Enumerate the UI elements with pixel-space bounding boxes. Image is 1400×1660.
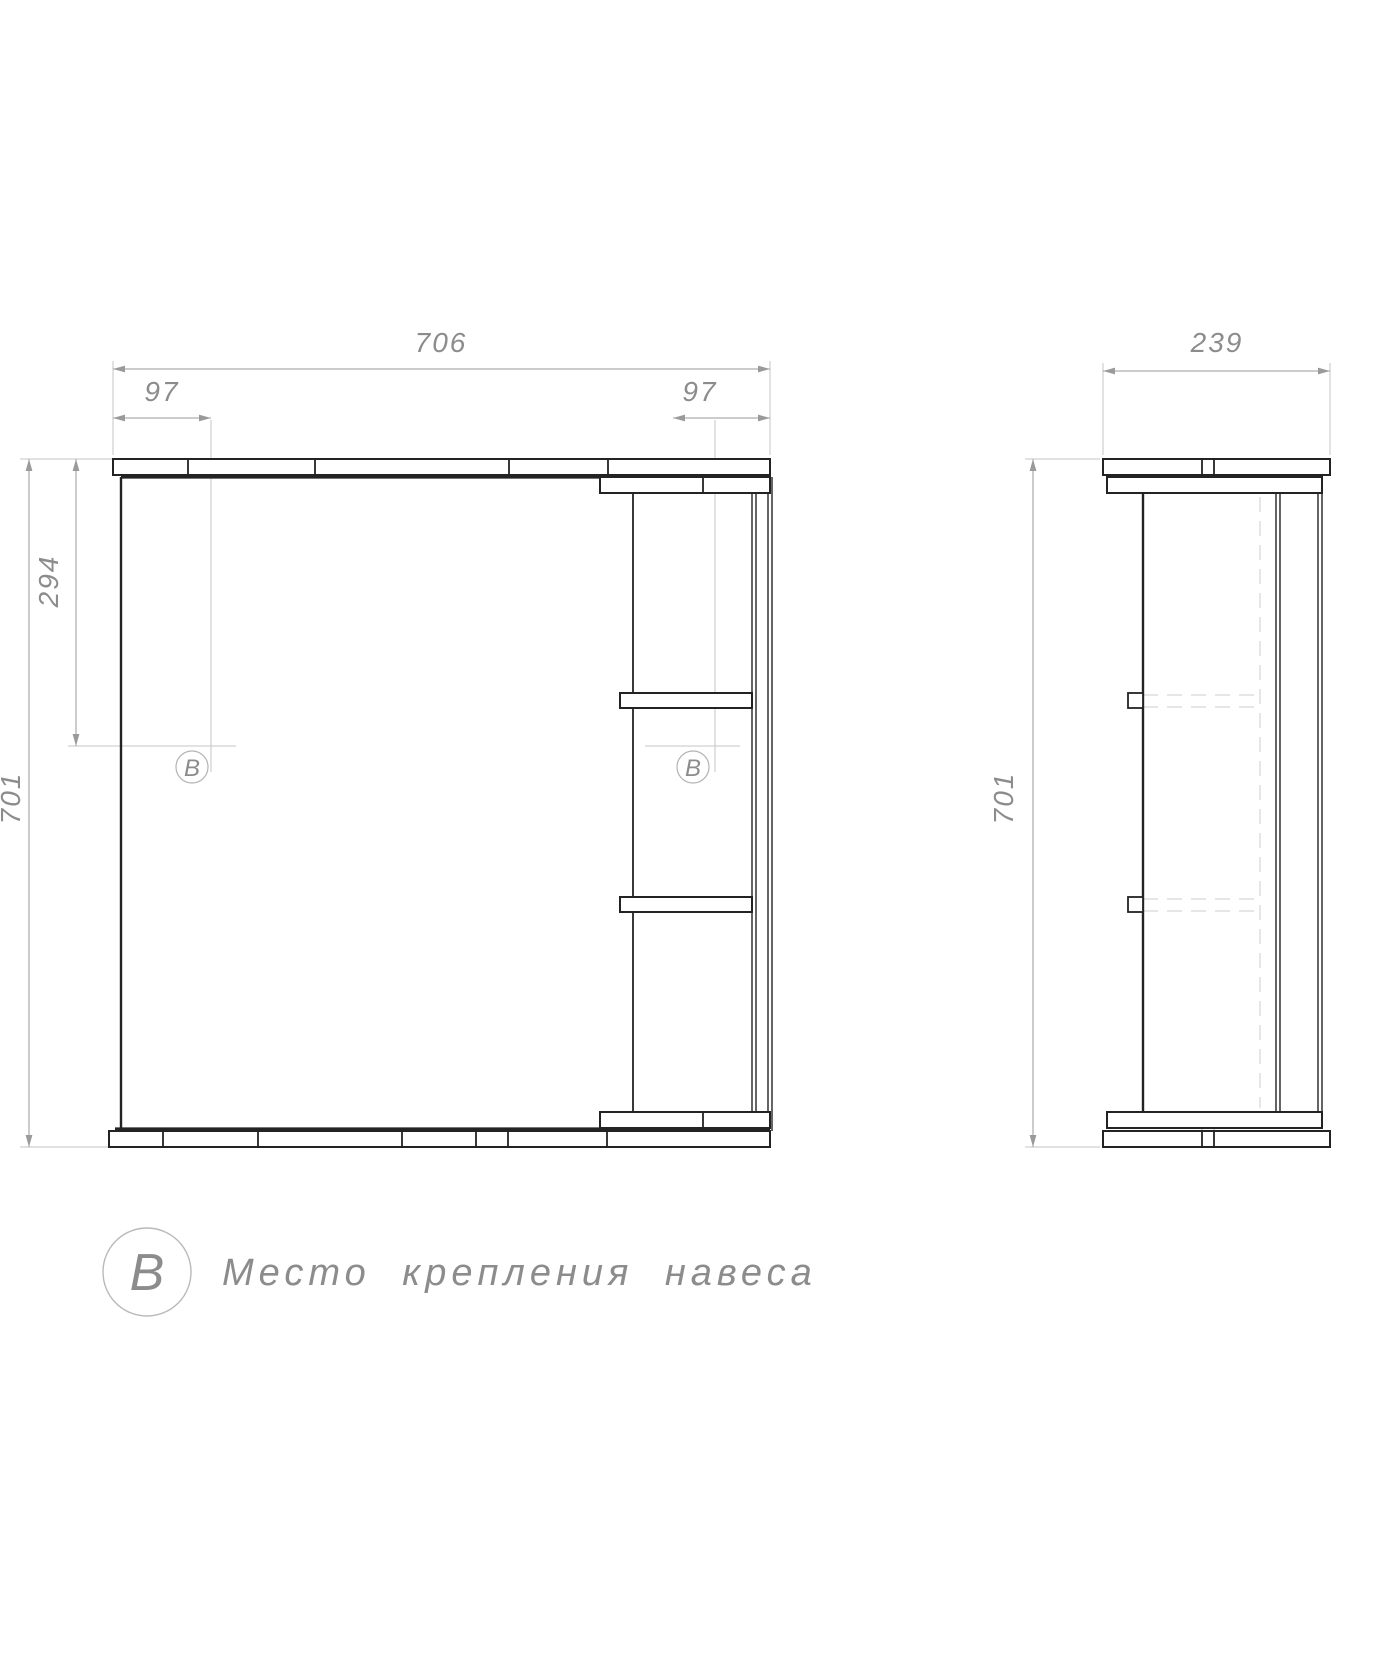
side-top-board [1103,459,1330,475]
side-lower-board [1107,1112,1322,1128]
top-panel [113,459,770,475]
side-bottom-board [1103,1131,1330,1147]
dim-text-239: 239 [1190,327,1244,358]
bottom-panel [109,1131,770,1147]
right-wall-lines [752,477,772,1131]
side-second-board [1107,477,1322,493]
shelf-lower [620,897,752,912]
legend-marker-symbol: B [130,1244,165,1302]
side-view: 239 701 [988,327,1330,1147]
shelf-pin-upper [1128,693,1143,708]
dim-text-701-side: 701 [988,772,1019,825]
dim-text-97-left: 97 [144,376,179,407]
marker-b-left-label: B [184,755,200,782]
front-view: B B 706 97 97 294 701 [0,327,772,1147]
shelf-pin-lower [1128,897,1143,912]
dim-text-701-front: 701 [0,772,26,825]
legend-label: Место крепления навеса [222,1252,817,1294]
drawing-svg: B B 706 97 97 294 701 [0,0,1400,1660]
shelf-upper [620,693,752,708]
marker-b-right-label: B [685,755,701,782]
shelf-unit-top-board [600,477,770,493]
legend: B Место крепления навеса [103,1228,817,1316]
side-back-wall-lines [1276,493,1322,1112]
hidden-shelf-lines [1143,695,1256,911]
dim-text-97-right: 97 [682,376,717,407]
dim-text-294: 294 [33,555,64,609]
dim-text-706: 706 [415,327,468,358]
technical-drawing-canvas: B B 706 97 97 294 701 [0,0,1400,1660]
shelf-unit-bottom-board [600,1112,770,1128]
